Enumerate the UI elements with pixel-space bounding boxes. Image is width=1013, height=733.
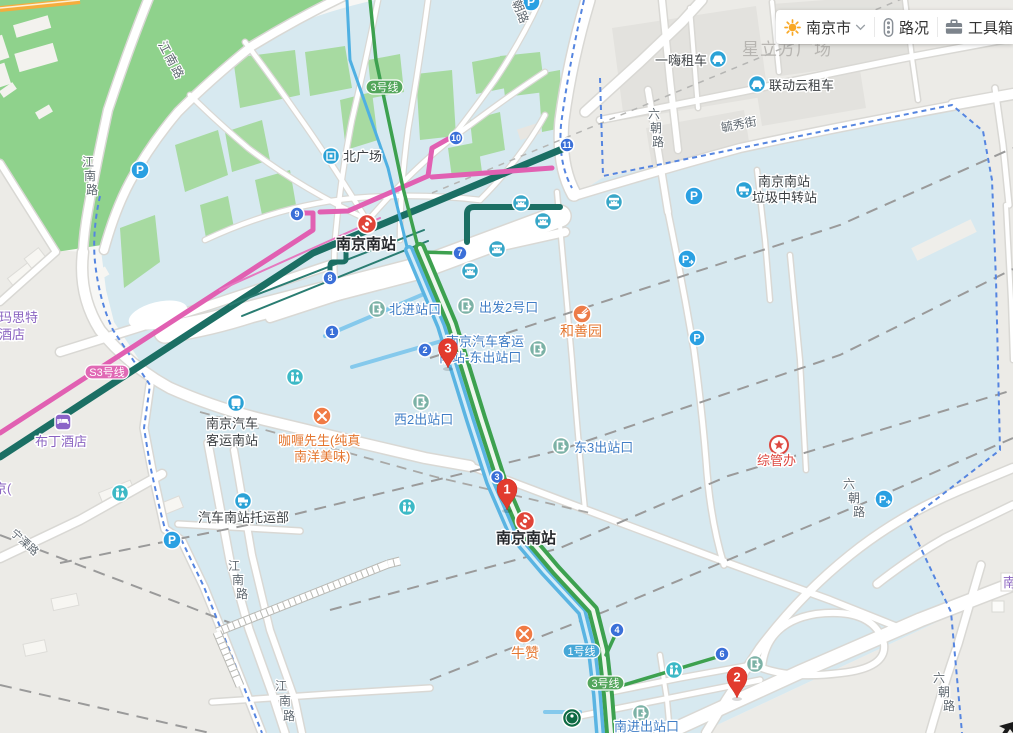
svg-text:P: P — [168, 533, 176, 547]
svg-text:南京汽车: 南京汽车 — [206, 416, 258, 431]
svg-text:路: 路 — [652, 134, 664, 149]
svg-text:S3号线: S3号线 — [89, 365, 124, 379]
svg-text:南京南站: 南京南站 — [496, 529, 556, 547]
svg-text:六: 六 — [843, 477, 855, 491]
svg-text:汽车南站托运部: 汽车南站托运部 — [198, 510, 289, 525]
svg-text:垃圾中转站: 垃圾中转站 — [752, 190, 817, 205]
svg-text:P: P — [879, 494, 886, 506]
svg-text:3号线: 3号线 — [370, 80, 398, 94]
svg-text:P: P — [136, 163, 144, 177]
svg-text:8: 8 — [327, 273, 332, 283]
svg-text:3: 3 — [444, 341, 451, 356]
svg-text:P: P — [693, 333, 700, 345]
svg-text:路: 路 — [86, 182, 98, 197]
svg-text:南京南站: 南京南站 — [758, 174, 810, 189]
svg-text:店酒店: 店酒店 — [0, 327, 25, 342]
svg-text:咖喱先生(纯真: 咖喱先生(纯真 — [278, 433, 360, 448]
svg-text:路: 路 — [853, 504, 865, 519]
svg-text:9: 9 — [294, 209, 299, 219]
svg-text:3: 3 — [494, 472, 499, 482]
svg-text:南洋美味): 南洋美味) — [294, 449, 350, 464]
svg-text:南进出站口: 南进出站口 — [614, 719, 679, 733]
svg-text:六: 六 — [933, 671, 945, 685]
svg-text:朝: 朝 — [938, 685, 950, 699]
svg-text:10: 10 — [451, 133, 461, 143]
svg-text:7: 7 — [457, 248, 462, 258]
svg-text:布丁酒店: 布丁酒店 — [35, 434, 87, 449]
svg-text:南京南站: 南京南站 — [336, 235, 396, 253]
svg-text:牛赞: 牛赞 — [511, 645, 539, 661]
svg-text:南: 南 — [84, 168, 96, 183]
svg-text:2: 2 — [733, 670, 740, 685]
svg-text:南京汽车客运: 南京汽车客运 — [446, 334, 524, 349]
svg-text:客运南站: 客运南站 — [206, 433, 258, 448]
svg-text:P: P — [682, 254, 689, 266]
svg-text:南: 南 — [279, 693, 291, 708]
svg-text:6: 6 — [719, 649, 724, 659]
svg-text:2: 2 — [422, 345, 427, 355]
svg-text:1: 1 — [329, 327, 334, 337]
svg-text:3号线: 3号线 — [591, 676, 619, 690]
svg-text:路: 路 — [943, 698, 955, 713]
svg-text:北进站口: 北进站口 — [389, 302, 441, 317]
svg-text:P: P — [690, 189, 698, 203]
svg-text:西2出站口: 西2出站口 — [394, 412, 453, 427]
svg-text:11: 11 — [562, 140, 572, 150]
svg-text:南: 南 — [232, 572, 244, 587]
svg-text:京玛思特: 京玛思特 — [0, 310, 38, 325]
svg-text:江: 江 — [275, 679, 287, 693]
svg-text:P: P — [527, 0, 535, 9]
svg-text:路: 路 — [236, 586, 248, 601]
svg-text:江: 江 — [82, 155, 94, 169]
svg-text:北广场: 北广场 — [343, 149, 382, 164]
svg-text:朝: 朝 — [650, 121, 662, 135]
svg-text:4: 4 — [614, 625, 619, 635]
svg-text:朝: 朝 — [848, 491, 860, 505]
svg-text:1: 1 — [503, 482, 510, 497]
svg-text:六: 六 — [648, 107, 660, 121]
svg-text:1号线: 1号线 — [567, 644, 595, 658]
svg-text:东3出站口: 东3出站口 — [574, 440, 633, 455]
svg-text:南: 南 — [1003, 575, 1013, 590]
svg-text:京(: 京( — [0, 481, 12, 496]
svg-text:和善园: 和善园 — [560, 323, 602, 339]
svg-text:综管办: 综管办 — [757, 453, 796, 468]
svg-text:江: 江 — [228, 559, 240, 573]
svg-text:路: 路 — [283, 708, 295, 723]
svg-text:联动云租车: 联动云租车 — [769, 78, 834, 93]
svg-text:出发2号口: 出发2号口 — [479, 300, 538, 315]
svg-text:一嗨租车: 一嗨租车 — [655, 53, 707, 68]
